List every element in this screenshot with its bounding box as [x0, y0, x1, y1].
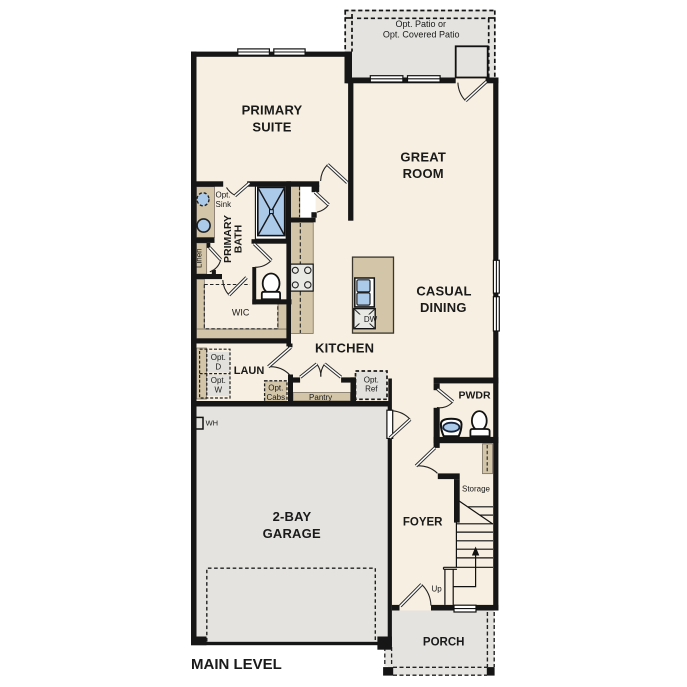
- svg-text:Opt.: Opt.: [364, 375, 379, 384]
- svg-text:W: W: [215, 386, 223, 395]
- svg-text:D: D: [215, 362, 221, 371]
- svg-text:Ref: Ref: [365, 385, 378, 394]
- svg-text:CASUAL: CASUAL: [416, 284, 471, 299]
- svg-text:FOYER: FOYER: [403, 517, 443, 529]
- svg-text:Opt.: Opt.: [211, 353, 226, 362]
- svg-text:MAIN LEVEL: MAIN LEVEL: [191, 656, 282, 673]
- svg-text:Up: Up: [432, 585, 443, 594]
- svg-text:ROOM: ROOM: [403, 166, 444, 181]
- svg-text:Linen: Linen: [194, 248, 203, 268]
- svg-text:GREAT: GREAT: [400, 150, 446, 165]
- svg-text:PRIMARY: PRIMARY: [242, 103, 303, 118]
- svg-text:WH: WH: [206, 418, 219, 427]
- svg-text:DW: DW: [364, 315, 378, 324]
- svg-text:Opt. Covered Patio: Opt. Covered Patio: [383, 29, 460, 39]
- svg-text:Opt.: Opt.: [216, 191, 231, 200]
- svg-text:Opt.: Opt.: [211, 376, 226, 385]
- svg-text:Opt.: Opt.: [268, 383, 283, 392]
- svg-text:Sink: Sink: [216, 200, 233, 209]
- svg-text:PORCH: PORCH: [423, 637, 465, 649]
- svg-text:DINING: DINING: [420, 300, 467, 315]
- svg-text:PWDR: PWDR: [458, 390, 490, 402]
- svg-text:WIC: WIC: [232, 308, 250, 318]
- svg-text:Cabs: Cabs: [266, 393, 285, 402]
- svg-text:LAUN: LAUN: [234, 365, 265, 377]
- svg-text:Storage: Storage: [462, 485, 491, 494]
- svg-text:BATH: BATH: [233, 225, 245, 253]
- svg-text:2-BAY: 2-BAY: [273, 509, 312, 524]
- svg-text:Pantry: Pantry: [309, 393, 332, 402]
- svg-text:GARAGE: GARAGE: [263, 526, 321, 541]
- svg-text:SUITE: SUITE: [252, 120, 291, 135]
- svg-text:KITCHEN: KITCHEN: [315, 340, 374, 355]
- svg-text:Opt. Patio or: Opt. Patio or: [396, 19, 447, 29]
